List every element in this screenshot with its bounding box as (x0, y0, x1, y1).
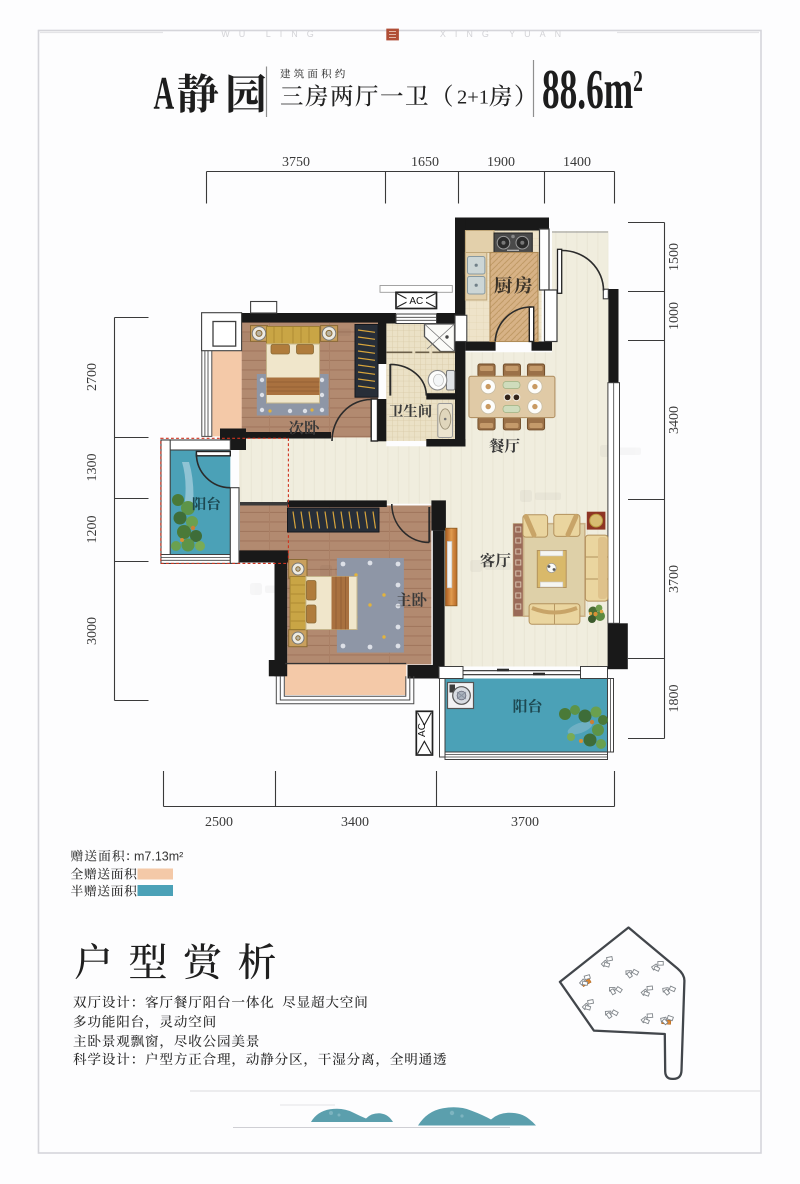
svg-text:2500: 2500 (205, 815, 233, 830)
svg-text:A: A (154, 67, 175, 119)
svg-text:XING YUAN: XING YUAN (440, 29, 570, 39)
svg-text:3750: 3750 (282, 155, 310, 170)
svg-text:1000: 1000 (667, 302, 682, 330)
svg-text:1200: 1200 (85, 516, 100, 544)
svg-text:3700: 3700 (667, 565, 682, 593)
svg-text:2700: 2700 (85, 363, 100, 391)
svg-text:3700: 3700 (511, 815, 539, 830)
svg-text:WU LING: WU LING (221, 29, 323, 39)
svg-text:1900: 1900 (487, 155, 515, 170)
svg-text:1500: 1500 (667, 243, 682, 271)
svg-text:AC: AC (409, 296, 423, 307)
svg-text:3400: 3400 (667, 406, 682, 434)
svg-text:88.6m2: 88.6m2 (542, 59, 643, 121)
svg-text:3400: 3400 (341, 815, 369, 830)
svg-text:1400: 1400 (563, 155, 591, 170)
svg-text:1650: 1650 (411, 155, 439, 170)
svg-text:2+1: 2+1 (457, 87, 489, 109)
svg-text:1800: 1800 (667, 685, 682, 713)
svg-text:1300: 1300 (85, 454, 100, 482)
svg-text:3000: 3000 (85, 617, 100, 645)
svg-text:m7.13m²: m7.13m² (134, 850, 183, 864)
svg-text:AC: AC (417, 723, 428, 737)
